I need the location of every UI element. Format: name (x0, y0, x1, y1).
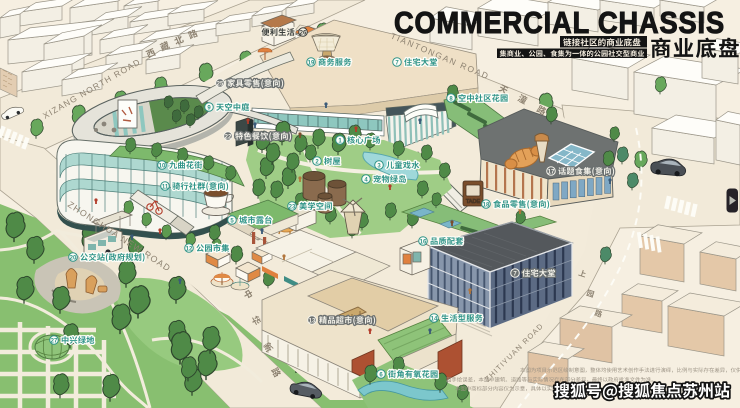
svg-text:20: 20 (70, 255, 77, 261)
svg-text:11: 11 (162, 184, 169, 190)
svg-text:13: 13 (309, 318, 316, 324)
svg-text:COMMERCIAL CHASSIS: COMMERCIAL CHASSIS (394, 5, 725, 40)
svg-text:14: 14 (431, 316, 438, 322)
svg-text:16: 16 (420, 239, 427, 245)
svg-text:18: 18 (483, 202, 490, 208)
svg-text:25: 25 (217, 81, 224, 87)
svg-text:10: 10 (159, 163, 166, 169)
svg-text:22: 22 (225, 134, 232, 140)
svg-text:23: 23 (289, 204, 296, 210)
svg-text:17: 17 (548, 169, 555, 175)
svg-text:19: 19 (308, 60, 315, 66)
svg-text:26: 26 (300, 30, 307, 36)
svg-text:TADE: TADE (466, 199, 481, 205)
svg-text:27: 27 (51, 338, 58, 344)
svg-text:12: 12 (186, 246, 193, 252)
